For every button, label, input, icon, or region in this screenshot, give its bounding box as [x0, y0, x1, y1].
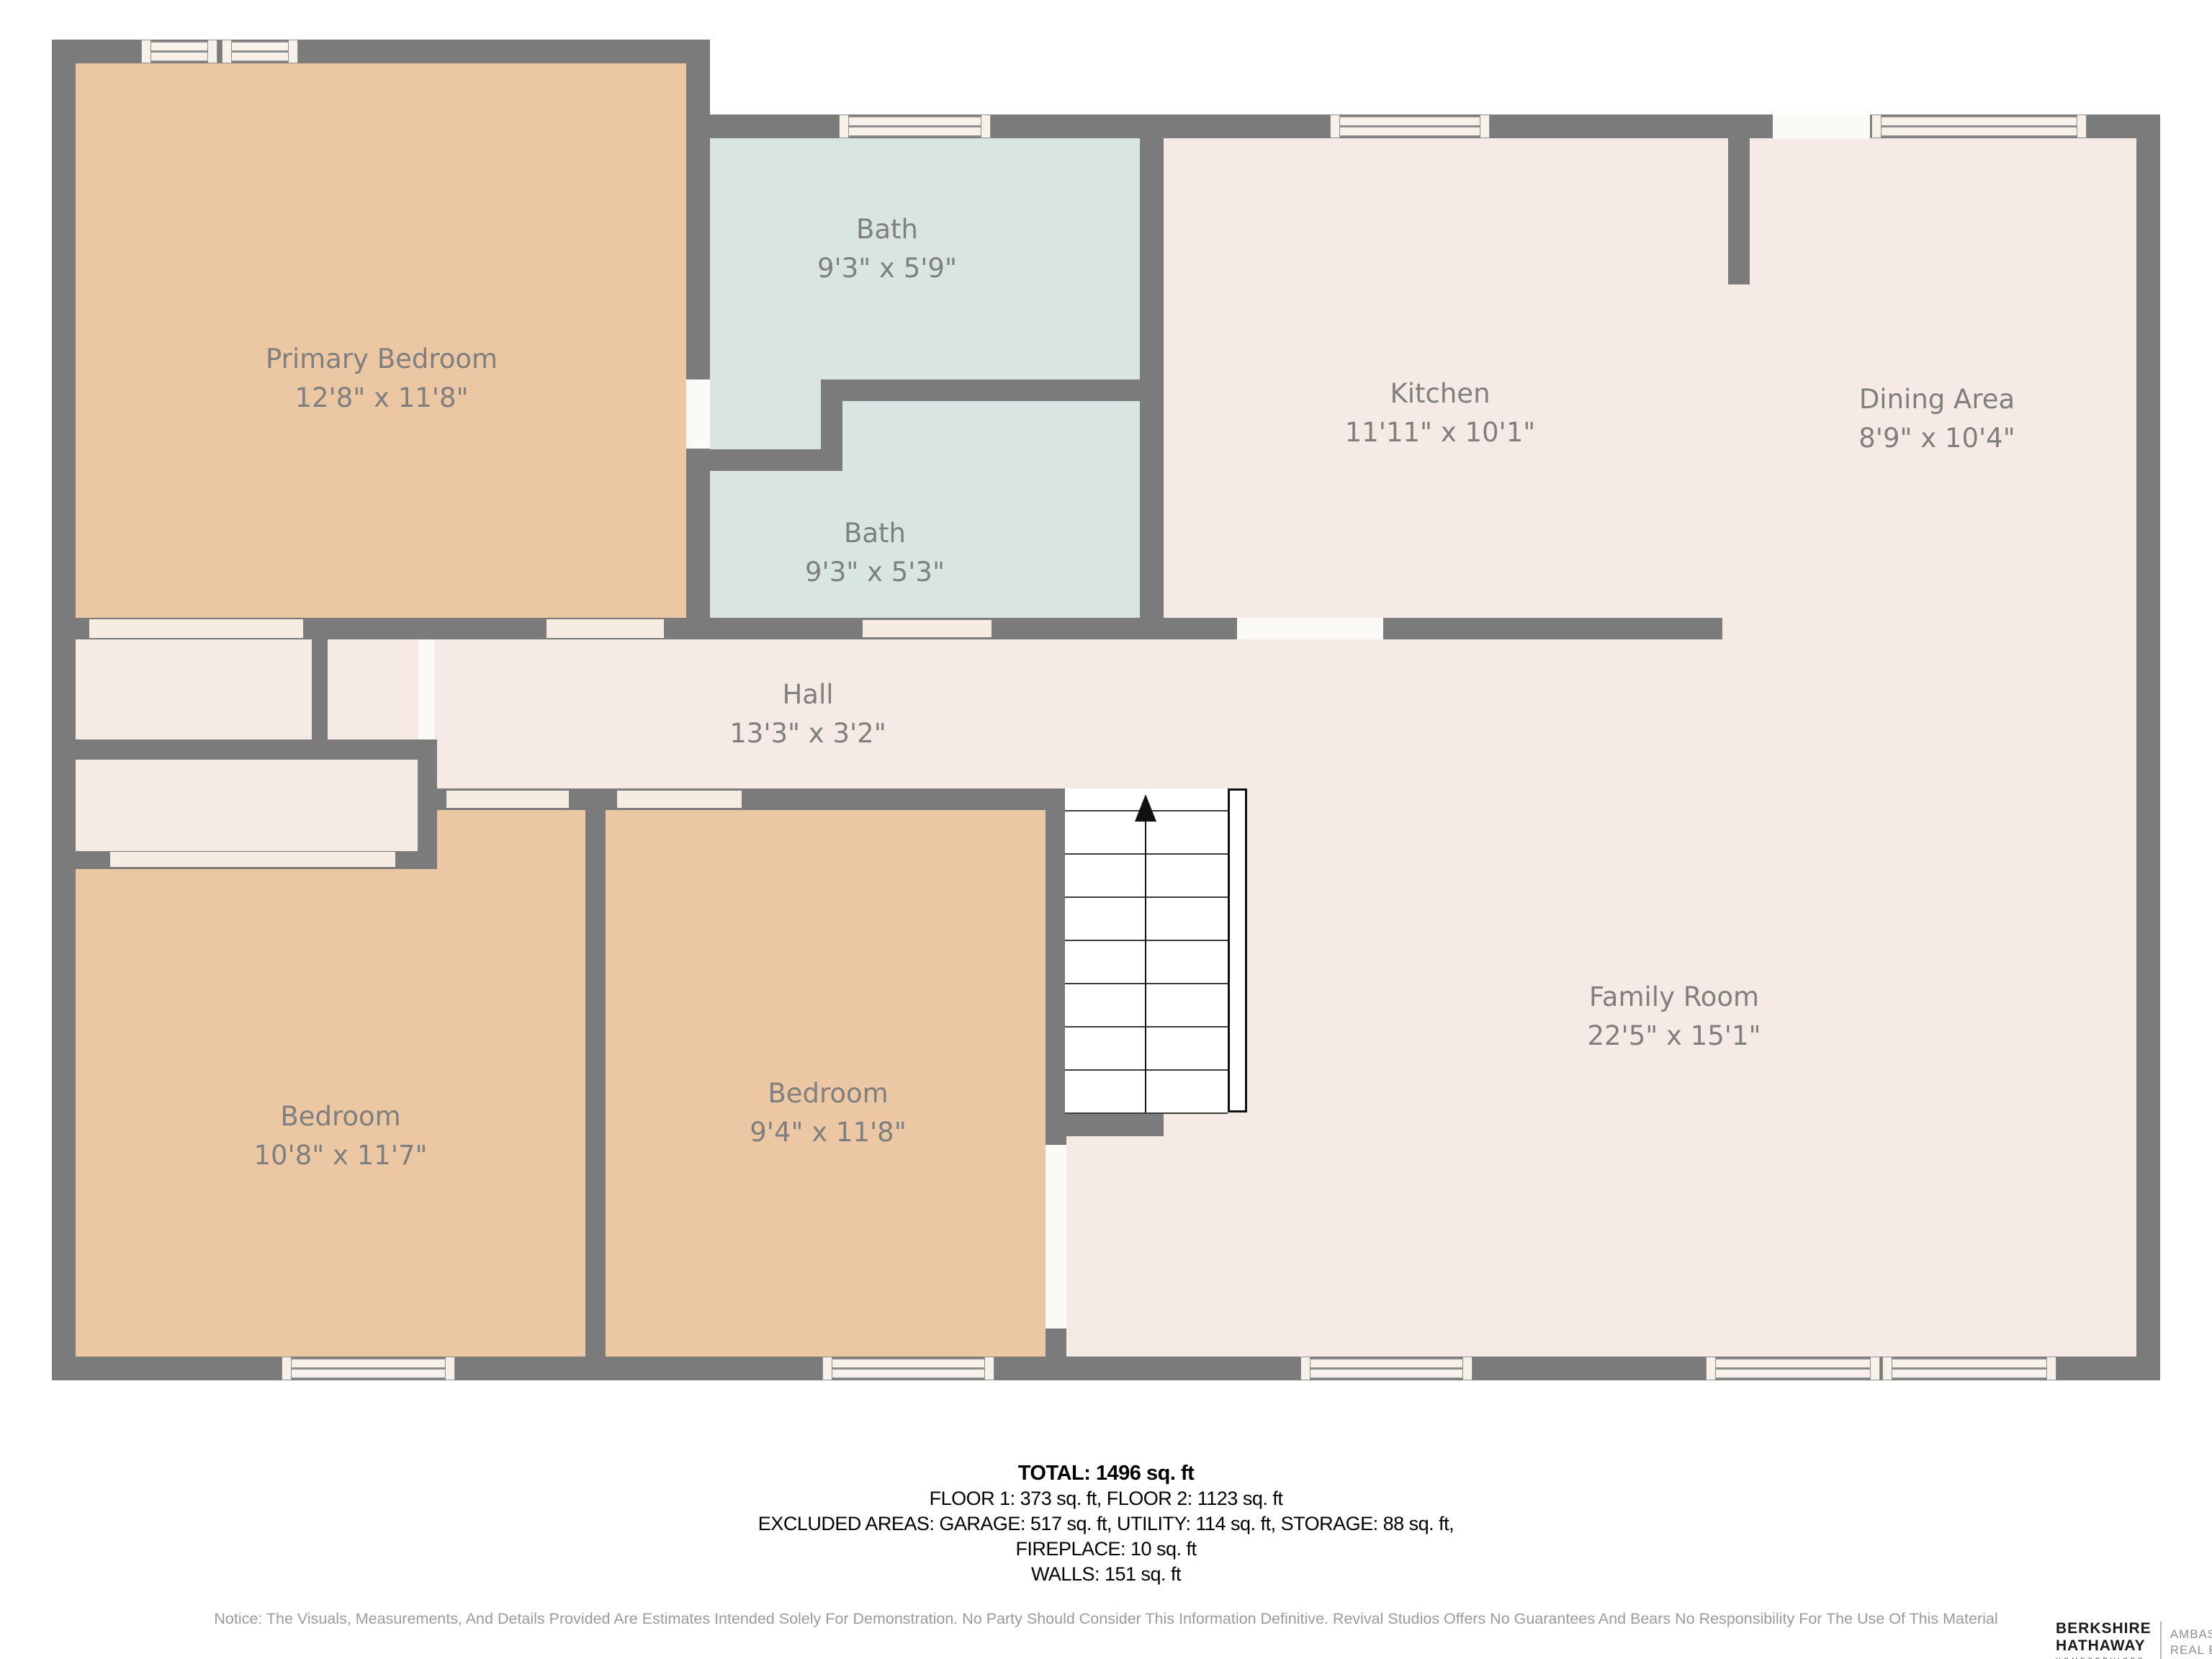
stair-railing: [1228, 788, 1247, 1112]
room-label-bedroom-2: Bedroom 9'4" x 11'8": [598, 1074, 1058, 1152]
wall-bath-divider-a: [821, 379, 1140, 401]
room-label-bath-2: Bath 9'3" x 5'3": [644, 514, 1105, 592]
logo-right-block: AMBASSADOR REAL ESTATE: [2170, 1627, 2212, 1658]
window: [823, 1358, 994, 1379]
room-dims: 22'5" x 15'1": [1444, 1017, 1905, 1056]
room-dims: 9'3" x 5'9": [657, 249, 1118, 288]
staircase: [1065, 788, 1228, 1112]
room-name: Primary Bedroom: [151, 340, 612, 379]
patio-door-opening: [1773, 114, 1870, 138]
bedroom-1-door: [446, 791, 569, 808]
closet-2: [328, 639, 418, 739]
bath-2-door: [863, 620, 992, 637]
room-label-dining-area: Dining Area 8'9" x 10'4": [1707, 380, 2167, 458]
berkshire-hathaway-logo: BERKSHIRE HATHAWAY HOMESERVICES AMBASSAD…: [2056, 1620, 2212, 1659]
window: [1872, 116, 2086, 137]
room-dims: 12'8" x 11'8": [151, 379, 612, 418]
room-name: Bath: [657, 210, 1118, 249]
logo-ambassador: AMBASSADOR: [2170, 1627, 2212, 1642]
summary-floors: FLOOR 1: 373 sq. ft, FLOOR 2: 1123 sq. f…: [0, 1488, 2212, 1510]
room-label-family-room: Family Room 22'5" x 15'1": [1444, 978, 1905, 1056]
window: [222, 41, 297, 62]
stair-treads: [1065, 810, 1228, 1114]
room-dims: 9'4" x 11'8": [598, 1113, 1058, 1152]
room-label-kitchen: Kitchen 11'11" x 10'1": [1210, 374, 1671, 452]
room-dims: 11'11" x 10'1": [1210, 413, 1671, 452]
room-name: Bedroom: [110, 1097, 571, 1136]
floor-plan-page: Primary Bedroom 12'8" x 11'8" Bath 9'3" …: [0, 0, 2212, 1659]
wall-kitchen-south-1: [1164, 618, 1237, 639]
logo-berkshire: BERKSHIRE: [2056, 1620, 2152, 1637]
summary-walls: WALLS: 151 sq. ft: [0, 1563, 2212, 1586]
logo-divider: [2160, 1622, 2162, 1659]
room-label-primary-bedroom: Primary Bedroom 12'8" x 11'8": [151, 340, 612, 418]
kitchen-entry-opening: [1237, 618, 1383, 639]
wall-bath-divider-c: [710, 449, 842, 471]
window: [1883, 1358, 2056, 1379]
room-label-bath-1: Bath 9'3" x 5'9": [657, 210, 1118, 288]
room-label-bedroom-1: Bedroom 10'8" x 11'7": [110, 1097, 571, 1175]
window: [142, 41, 217, 62]
window: [1331, 116, 1489, 137]
room-dims: 9'3" x 5'3": [644, 553, 1105, 592]
room-dims: 8'9" x 10'4": [1707, 419, 2167, 458]
room-name: Hall: [577, 675, 1038, 714]
room-name: Bedroom: [598, 1074, 1058, 1113]
wall-kitchen-south-2: [1383, 618, 1722, 639]
window: [1707, 1358, 1879, 1379]
bedroom-2-door: [617, 791, 742, 808]
closet-3: [76, 760, 418, 851]
stairs-up-arrow-icon: [1135, 794, 1156, 822]
window: [282, 1358, 454, 1379]
room-dims: 13'3" x 3'2": [577, 714, 1038, 753]
primary-bath-door: [686, 379, 710, 449]
logo-real-estate: REAL ESTATE: [2170, 1642, 2212, 1658]
summary-total: TOTAL: 1496 sq. ft: [0, 1462, 2212, 1485]
room-name: Family Room: [1444, 978, 1905, 1017]
closet-3-opening: [110, 852, 395, 867]
room-name: Bath: [644, 514, 1105, 553]
room-name: Kitchen: [1210, 374, 1671, 413]
vestibule-area: [1066, 1136, 1228, 1357]
summary-excluded: EXCLUDED AREAS: GARAGE: 517 sq. ft, UTIL…: [0, 1513, 2212, 1535]
room-name: Dining Area: [1707, 380, 2167, 419]
window: [1301, 1358, 1472, 1379]
disclaimer-notice: Notice: The Visuals, Measurements, And D…: [0, 1610, 2212, 1628]
primary-bedroom-door: [547, 619, 664, 638]
vestibule-door: [1046, 1145, 1066, 1328]
closet-2-door-opening: [418, 639, 434, 739]
room-area-kitchen-dining-family: [1164, 138, 2136, 1357]
closet-1: [76, 639, 312, 739]
room-label-hall: Hall 13'3" x 3'2": [577, 675, 1038, 753]
logo-hathaway: HATHAWAY: [2056, 1637, 2152, 1655]
logo-left-block: BERKSHIRE HATHAWAY HOMESERVICES: [2056, 1620, 2152, 1659]
room-dims: 10'8" x 11'7": [110, 1136, 571, 1175]
primary-closet-opening: [89, 619, 303, 638]
summary-fireplace: FIREPLACE: 10 sq. ft: [0, 1538, 2212, 1560]
wall-kitchen-dining-stub: [1728, 138, 1750, 284]
stair-center-line: [1145, 809, 1146, 1112]
room-area-bedroom-1: [76, 810, 585, 1357]
window: [840, 116, 990, 137]
